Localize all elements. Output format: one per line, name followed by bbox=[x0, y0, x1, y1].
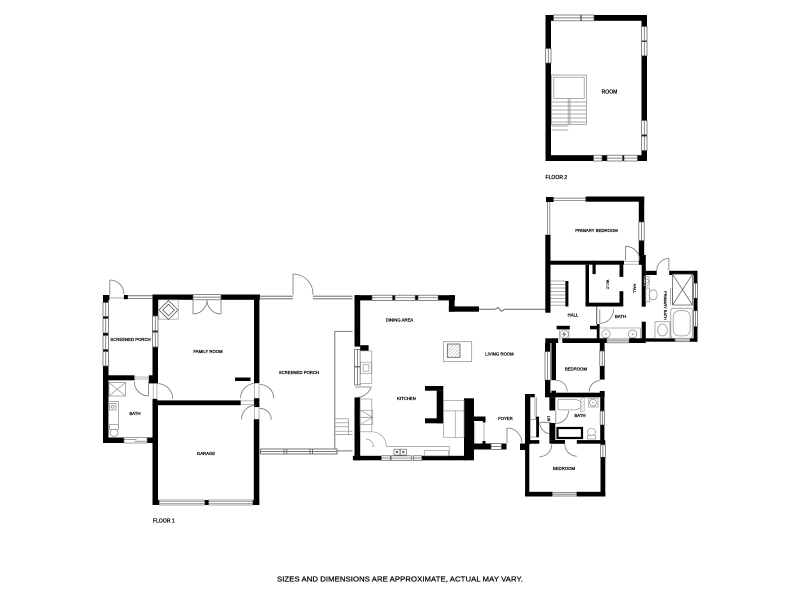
svg-text:GARAGE: GARAGE bbox=[197, 451, 215, 456]
svg-text:BATH: BATH bbox=[129, 411, 140, 416]
svg-text:PRIMARY BEDROOM: PRIMARY BEDROOM bbox=[575, 228, 618, 233]
svg-text:DINING AREA: DINING AREA bbox=[386, 317, 414, 322]
svg-text:FOYER: FOYER bbox=[498, 416, 513, 421]
svg-text:HALL: HALL bbox=[633, 284, 637, 294]
svg-text:FLOOR 1: FLOOR 1 bbox=[153, 519, 175, 525]
svg-text:PRIMARY BATH: PRIMARY BATH bbox=[663, 291, 667, 320]
svg-text:W.I.C: W.I.C bbox=[606, 280, 610, 290]
svg-text:FLOOR 2: FLOOR 2 bbox=[546, 175, 568, 181]
svg-text:BEDROOM: BEDROOM bbox=[553, 466, 575, 471]
svg-text:KITCHEN: KITCHEN bbox=[397, 396, 416, 401]
svg-text:SCREENED PORCH: SCREENED PORCH bbox=[279, 370, 319, 375]
svg-text:BEDROOM: BEDROOM bbox=[565, 367, 587, 372]
svg-text:FAMILY ROOM: FAMILY ROOM bbox=[193, 349, 223, 354]
svg-text:BATH: BATH bbox=[615, 314, 626, 319]
svg-text:LIVING ROOM: LIVING ROOM bbox=[485, 352, 514, 357]
svg-text:ROOM: ROOM bbox=[602, 90, 618, 96]
svg-text:SCREENED PORCH: SCREENED PORCH bbox=[110, 337, 150, 342]
svg-text:HALL: HALL bbox=[568, 313, 579, 318]
svg-text:LIN: LIN bbox=[547, 416, 551, 422]
svg-text:SIZES AND DIMENSIONS ARE APPRO: SIZES AND DIMENSIONS ARE APPROXIMATE, AC… bbox=[277, 575, 523, 584]
svg-text:BATH: BATH bbox=[574, 413, 585, 418]
